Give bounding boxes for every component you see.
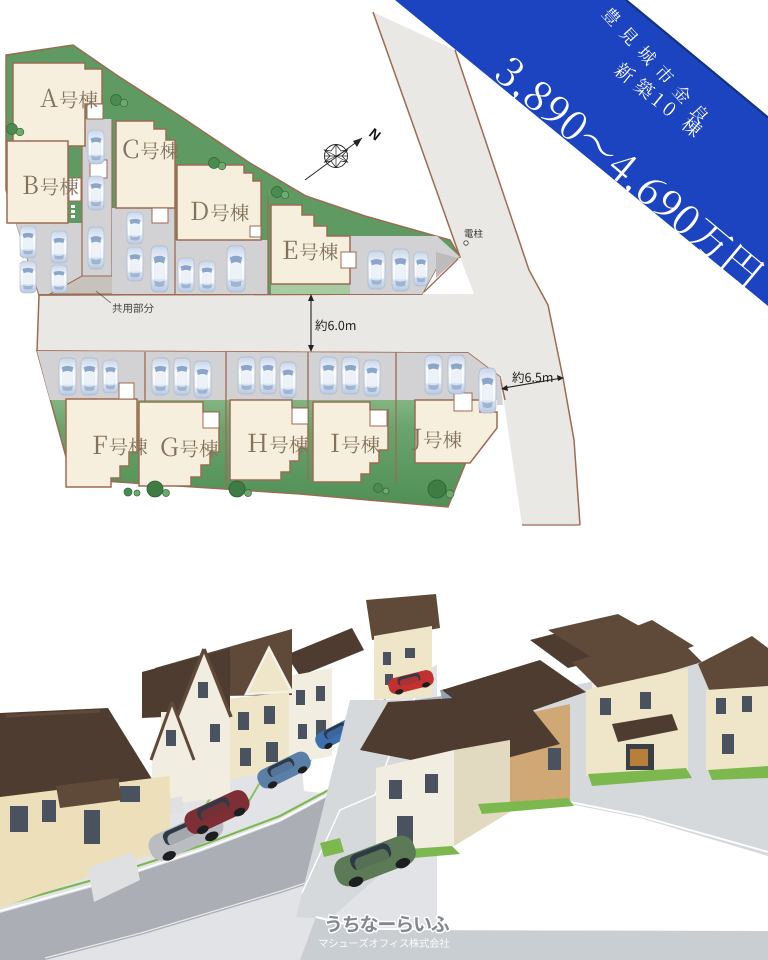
svg-text:N: N — [366, 125, 384, 144]
